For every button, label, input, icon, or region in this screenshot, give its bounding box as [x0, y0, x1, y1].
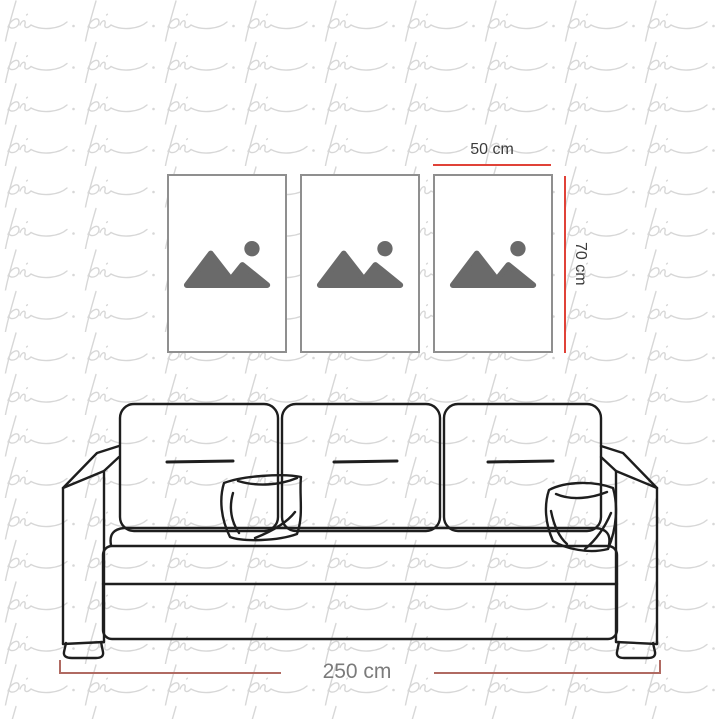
sofa-width-dimension-line	[434, 672, 661, 674]
frame-2	[300, 174, 420, 353]
sofa-width-label: 250 cm	[287, 660, 427, 684]
size-guide-illustration: pi	[0, 0, 720, 719]
image-placeholder-icon	[315, 237, 407, 291]
frame-3	[433, 174, 553, 353]
sofa-seat-base	[103, 546, 617, 639]
frame-1	[167, 174, 287, 353]
image-placeholder-icon	[448, 237, 540, 291]
sofa-back-cushion	[120, 404, 278, 531]
sofa-back-cushion	[282, 404, 440, 531]
sofa-back-cushion	[444, 404, 601, 531]
frame-width-label: 50 cm	[433, 141, 551, 159]
frame-height-label: 70 cm	[571, 231, 589, 297]
frame-height-dimension-line	[564, 176, 566, 353]
sofa-width-dimension-line	[59, 672, 281, 674]
sofa-width-right-tick	[659, 660, 661, 674]
frame-width-dimension-line	[433, 164, 551, 166]
image-placeholder-icon	[182, 237, 274, 291]
sofa-illustration	[0, 0, 720, 719]
